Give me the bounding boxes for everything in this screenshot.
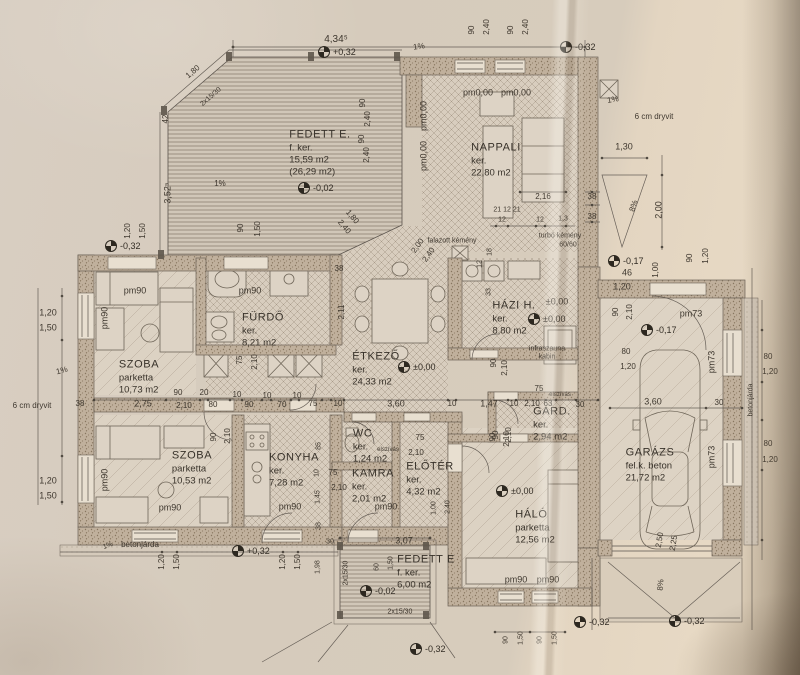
dim-label: 1,20 — [762, 456, 778, 464]
dim-label: 1% — [607, 95, 620, 105]
dim-label: 3,07 — [395, 537, 413, 546]
dim-label: 90 — [174, 389, 183, 397]
dim-label: 1% — [214, 180, 226, 188]
dim-label: 1,20 — [762, 368, 778, 376]
room-floor: parketta — [515, 522, 555, 534]
level-value: -0,02 — [375, 586, 396, 596]
room-label: SZOBAparketta10,53 m2 — [172, 449, 212, 487]
level-mark: -0,02 — [298, 182, 334, 194]
dim-label: 2,40 — [363, 147, 371, 163]
room-label: GARÁZSfel.k. beton21,72 m2 — [626, 446, 675, 484]
dim-label: 1,50 — [39, 492, 57, 501]
dim-label: 10 — [293, 392, 302, 400]
dim-label: 90 — [210, 433, 218, 442]
dim-label: 1,20 — [702, 248, 710, 264]
dim-label: 30 — [576, 401, 585, 409]
room-floor: f. ker. — [397, 567, 455, 579]
room-name: KAMRA — [352, 467, 394, 481]
floorplan-scan: 4,34⁵902,40902,401%1,802x15/30423,52⁵1,2… — [0, 0, 800, 675]
room-area: 8,21 m2 — [242, 337, 284, 349]
room-label: NAPPALIker.22,80 m2 — [471, 141, 521, 179]
room-name: GARD. — [533, 405, 571, 419]
room-area: 15,59 m2 — [289, 154, 350, 166]
room-label: GARD.ker.2,94 m2 — [533, 405, 571, 443]
level-mark: -0,32 — [574, 616, 610, 628]
dim-label: 6 cm dryvit — [635, 113, 674, 121]
level-mark-icon — [574, 616, 586, 628]
dim-label: 3,60 — [644, 398, 662, 407]
dim-label: 8% — [657, 579, 666, 591]
dim-label: 2,10 — [331, 484, 347, 492]
dim-label: 1,3 — [558, 216, 568, 223]
room-floor: ker. — [533, 419, 571, 431]
dim-label: 60/60 — [559, 242, 577, 249]
dim-label: 1,45 — [315, 490, 322, 504]
dim-label: pm73 — [680, 310, 703, 319]
dim-label: 38 — [588, 193, 597, 201]
room-area: 2,94 m2 — [533, 431, 571, 443]
room-name: HÁLÓ — [515, 508, 555, 522]
level-mark: -0,02 — [360, 585, 396, 597]
dim-label: 4,34⁵ — [324, 35, 348, 45]
dim-label: 12 — [536, 217, 544, 224]
room-label: FEDETT Ef. ker.6,00 m2 — [397, 553, 455, 591]
room-label: ELŐTÉRker.4,32 m2 — [406, 460, 454, 498]
level-value: -0,32 — [684, 616, 705, 626]
dim-label: pm90 — [124, 287, 147, 296]
dim-label: 2,10 — [501, 360, 509, 376]
dim-label: 90 — [489, 433, 497, 442]
level-mark-icon — [105, 240, 117, 252]
room-area: 21,72 m2 — [626, 472, 675, 484]
room-extra: (26,29 m2) — [289, 166, 350, 178]
room-label: SZOBAparketta10,73 m2 — [119, 358, 159, 396]
level-mark-icon — [398, 361, 410, 373]
dim-label: 90 — [686, 254, 694, 263]
room-name: FEDETT E — [397, 553, 455, 567]
dim-label: 2,00 — [655, 201, 664, 219]
room-area: 10,53 m2 — [172, 475, 212, 487]
room-label: FEDETT E.f. ker.15,59 m2(26,29 m2) — [289, 128, 350, 177]
dim-label: 33 — [486, 288, 493, 296]
room-floor: ker. — [471, 155, 521, 167]
room-name: NAPPALI — [471, 141, 521, 155]
dim-label: 46 — [622, 269, 632, 278]
dim-label: 38 — [335, 265, 344, 273]
dim-label: 2,11 — [338, 305, 346, 320]
dim-label: 1,20 — [124, 223, 132, 239]
level-value: -0,17 — [623, 256, 644, 266]
dim-label: 10 — [510, 400, 519, 408]
room-floor: parketta — [172, 463, 212, 475]
dim-label: 90 — [468, 26, 476, 35]
room-area: 6,00 m2 — [397, 579, 455, 591]
dim-label: 30 — [715, 399, 724, 407]
dim-label: 90 — [507, 26, 515, 35]
room-label: WCker.1,24 m2 — [353, 427, 387, 465]
dim-label: 1,30 — [615, 143, 633, 152]
dim-label: 12 — [498, 217, 506, 224]
dim-label: 1,50 — [552, 631, 559, 645]
dim-label: 3,60 — [387, 400, 405, 409]
dim-label: 75 — [535, 385, 544, 393]
level-value: +0,32 — [333, 47, 356, 57]
dim-label: 1,20 — [158, 554, 166, 570]
dim-label: pm90 — [505, 576, 528, 585]
dim-label: pm90 — [239, 287, 262, 296]
level-mark-icon — [318, 46, 330, 58]
dim-label: pm0,00 — [463, 89, 493, 98]
level-value: -0,02 — [313, 183, 334, 193]
dim-label: 8% — [628, 199, 639, 212]
dim-label: 20 — [200, 389, 209, 397]
dim-label: 2,10 — [408, 449, 424, 457]
dim-label: 90 — [359, 99, 367, 108]
room-area: 10,73 m2 — [119, 384, 159, 396]
dim-label: 1,20 — [279, 554, 287, 570]
dim-label: falazott kémény — [427, 238, 476, 245]
room-label: KAMRAker.2,01 m2 — [352, 467, 394, 505]
dim-label: kabin — [539, 354, 556, 361]
room-name: SZOBA — [172, 449, 212, 463]
level-value: -0,32 — [575, 42, 596, 52]
level-mark-icon — [496, 485, 508, 497]
level-mark-icon — [528, 313, 540, 325]
level-mark: -0,17 — [608, 255, 644, 267]
dim-label: 90 — [503, 636, 510, 644]
dim-label: 2x15/30 — [388, 609, 413, 616]
level-mark-icon — [360, 585, 372, 597]
dim-label: 10 — [233, 391, 242, 399]
room-floor: parketta — [119, 372, 159, 384]
room-name: WC — [353, 427, 387, 441]
level-mark: -0,32 — [669, 615, 705, 627]
dim-label: 38 — [316, 522, 323, 530]
dim-label: 1,00 — [652, 262, 660, 278]
dim-label: 38 — [588, 213, 597, 221]
dim-label: 90 — [612, 308, 620, 317]
level-mark: ±0,00 — [398, 361, 435, 373]
dim-label: pm90 — [537, 576, 560, 585]
room-label: FÜRDŐker.8,21 m2 — [242, 311, 284, 349]
dim-label: turbó kémény — [539, 233, 581, 240]
room-floor: ker. — [242, 325, 284, 337]
dim-label: 90 — [237, 224, 245, 233]
dim-label: 1% — [55, 366, 68, 377]
dim-label: ±0,00 — [546, 298, 568, 307]
room-name: KONYHA — [269, 451, 319, 465]
room-area: 1,24 m2 — [353, 453, 387, 465]
dim-label: 1% — [102, 541, 114, 551]
dim-label: pm73 — [708, 446, 717, 469]
dim-label: pm0,00 — [501, 89, 531, 98]
level-value: -0,32 — [425, 644, 446, 654]
level-mark-icon — [298, 182, 310, 194]
room-floor: ker. — [353, 441, 387, 453]
dim-label: 12 — [477, 260, 484, 268]
dim-label: 1,50 — [139, 223, 147, 239]
dim-label: 2,40 — [445, 500, 452, 514]
dim-label: pm73 — [708, 351, 717, 374]
level-mark: ±0,00 — [528, 313, 565, 325]
dim-label: 1,20 — [39, 477, 57, 486]
level-mark-icon — [232, 545, 244, 557]
dim-label: 1,50 — [39, 324, 57, 333]
dim-label: 1,50 — [173, 554, 181, 570]
dim-label: 1% — [413, 42, 426, 52]
level-mark-icon — [669, 615, 681, 627]
dim-label: 60 — [374, 563, 381, 571]
dim-label: pm0,00 — [420, 141, 429, 171]
room-area: 24,33 m2 — [352, 376, 400, 388]
dim-label: 90 — [537, 636, 544, 644]
dim-label: infraszauna — [529, 346, 565, 353]
dim-label: 1,50 — [294, 554, 302, 570]
room-label: KONYHAker.7,28 m2 — [269, 451, 319, 489]
dim-label: pm90 — [101, 469, 110, 492]
level-mark: -0,32 — [105, 240, 141, 252]
room-area: 7,28 m2 — [269, 477, 319, 489]
level-mark: -0,32 — [560, 41, 596, 53]
dim-label: 2x15/30 — [343, 561, 350, 586]
level-value: -0,32 — [120, 241, 141, 251]
dim-label: 10 — [263, 392, 272, 400]
dim-label: elszívás — [549, 392, 571, 398]
dim-label: 6 cm dryvit — [13, 402, 52, 410]
room-name: SZOBA — [119, 358, 159, 372]
level-value: +0,32 — [247, 546, 270, 556]
level-value: ±0,00 — [511, 486, 533, 496]
level-mark-icon — [608, 255, 620, 267]
dim-label: 90 — [245, 401, 254, 409]
room-name: GARÁZS — [626, 446, 675, 460]
dim-label: 30 — [326, 539, 334, 546]
room-floor: ker. — [352, 364, 400, 376]
room-name: FEDETT E. — [289, 128, 350, 142]
dim-label: 2,10 — [251, 354, 259, 370]
dim-label: 1,50 — [254, 221, 262, 237]
dim-label: 80 — [764, 353, 773, 361]
dim-label: 2,50 — [655, 532, 666, 549]
dim-label: 2,40 — [421, 246, 436, 263]
dim-label: 75 — [309, 400, 318, 408]
dim-label: 80 — [622, 348, 631, 356]
dim-label: 90 — [490, 359, 498, 368]
dim-label: 75 — [416, 434, 425, 442]
room-area: 4,32 m2 — [406, 486, 454, 498]
room-area: 12,56 m2 — [515, 534, 555, 546]
dim-label: 10 — [448, 400, 457, 408]
room-floor: f. ker. — [289, 142, 350, 154]
level-mark: -0,32 — [410, 643, 446, 655]
dim-label: 80 — [209, 401, 218, 409]
room-label: HÁLÓparketta12,56 m2 — [515, 508, 555, 546]
level-mark: -0,17 — [641, 324, 677, 336]
room-name: HÁZI H. — [492, 299, 535, 313]
dim-label: pm0,00 — [420, 101, 429, 131]
level-mark: +0,32 — [318, 46, 356, 58]
dim-label: 2,10 — [626, 304, 634, 320]
dim-label: 2,10 — [503, 431, 511, 447]
dim-label: 42 — [162, 115, 170, 124]
dim-label: 70 — [278, 401, 287, 409]
dim-label: 80 — [764, 440, 773, 448]
room-area: 22,80 m2 — [471, 167, 521, 179]
dim-label: pm90 — [159, 504, 182, 513]
room-label: ÉTKEZŐker.24,33 m2 — [352, 350, 400, 388]
dim-label: 75 — [329, 469, 338, 477]
room-name: FÜRDŐ — [242, 311, 284, 325]
annotation-layer: 4,34⁵902,40902,401%1,802x15/30423,52⁵1,2… — [0, 0, 800, 675]
dim-label: 1,20 — [620, 363, 636, 371]
dim-label: 2,40 — [522, 19, 530, 35]
room-floor: ker. — [352, 481, 394, 493]
level-value: ±0,00 — [543, 314, 565, 324]
dim-label: 2,16 — [535, 193, 551, 201]
room-floor: fel.k. beton — [626, 460, 675, 472]
dim-label: 38 — [76, 400, 85, 408]
dim-label: 85 — [316, 442, 323, 450]
dim-label: 90 — [358, 135, 366, 144]
dim-label: 21 12 21 — [493, 207, 520, 214]
dim-label: 18 — [487, 248, 494, 256]
dim-label: betonjárda — [748, 383, 755, 416]
dim-label: 1,50 — [388, 556, 395, 570]
dim-label: 2,25 — [669, 535, 680, 552]
dim-label: 1,47 — [480, 400, 498, 409]
dim-label: 2,10 — [176, 402, 192, 410]
dim-label: 2,10 — [224, 428, 232, 444]
dim-label: 2,40 — [483, 19, 491, 35]
room-floor: ker. — [269, 465, 319, 477]
dim-label: 10 — [334, 400, 343, 408]
level-mark-icon — [410, 643, 422, 655]
dim-label: 1,50 — [518, 631, 525, 645]
room-floor: ker. — [406, 474, 454, 486]
dim-label: 1,98 — [315, 560, 322, 574]
level-mark-icon — [641, 324, 653, 336]
dim-label: 75 — [236, 356, 244, 365]
dim-label: 1,00 — [431, 501, 438, 515]
dim-label: pm90 — [279, 503, 302, 512]
dim-label: 3,52⁵ — [164, 182, 173, 203]
dim-label: 2x15/30 — [199, 86, 222, 108]
dim-label: 1,20 — [39, 309, 57, 318]
dim-label: betonjárda — [121, 541, 159, 549]
level-value: ±0,00 — [413, 362, 435, 372]
dim-label: 1,20 — [613, 283, 631, 292]
dim-label: 2,40 — [364, 111, 372, 127]
level-mark: +0,32 — [232, 545, 270, 557]
room-area: 2,01 m2 — [352, 493, 394, 505]
level-mark-icon — [560, 41, 572, 53]
dim-label: pm90 — [101, 307, 110, 330]
level-value: -0,32 — [589, 617, 610, 627]
dim-label: 1,80 — [184, 64, 201, 80]
dim-label: 2,75 — [134, 400, 152, 409]
room-area: 8,80 m2 — [492, 325, 535, 337]
level-value: -0,17 — [656, 325, 677, 335]
room-name: ÉTKEZŐ — [352, 350, 400, 364]
level-mark: ±0,00 — [496, 485, 533, 497]
room-name: ELŐTÉR — [406, 460, 454, 474]
